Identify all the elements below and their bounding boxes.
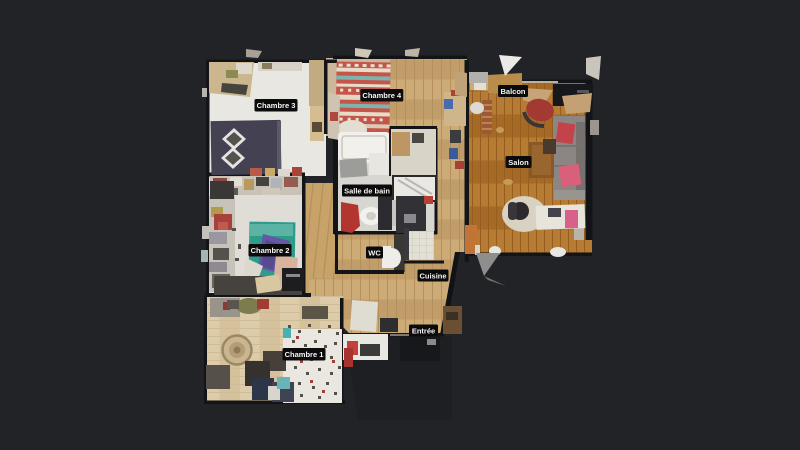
svg-text:Chambre 2: Chambre 2 [251, 246, 290, 255]
svg-text:Chambre 1: Chambre 1 [285, 350, 324, 359]
svg-text:WC: WC [368, 249, 381, 258]
svg-text:Chambre 4: Chambre 4 [362, 91, 402, 100]
svg-text:Chambre 3: Chambre 3 [257, 101, 296, 110]
svg-text:Balcon: Balcon [500, 87, 525, 96]
svg-text:Salle de bain: Salle de bain [344, 187, 390, 196]
svg-text:Cuisine: Cuisine [419, 272, 446, 281]
svg-text:Salon: Salon [508, 158, 529, 167]
svg-text:Entrée: Entrée [412, 327, 435, 336]
